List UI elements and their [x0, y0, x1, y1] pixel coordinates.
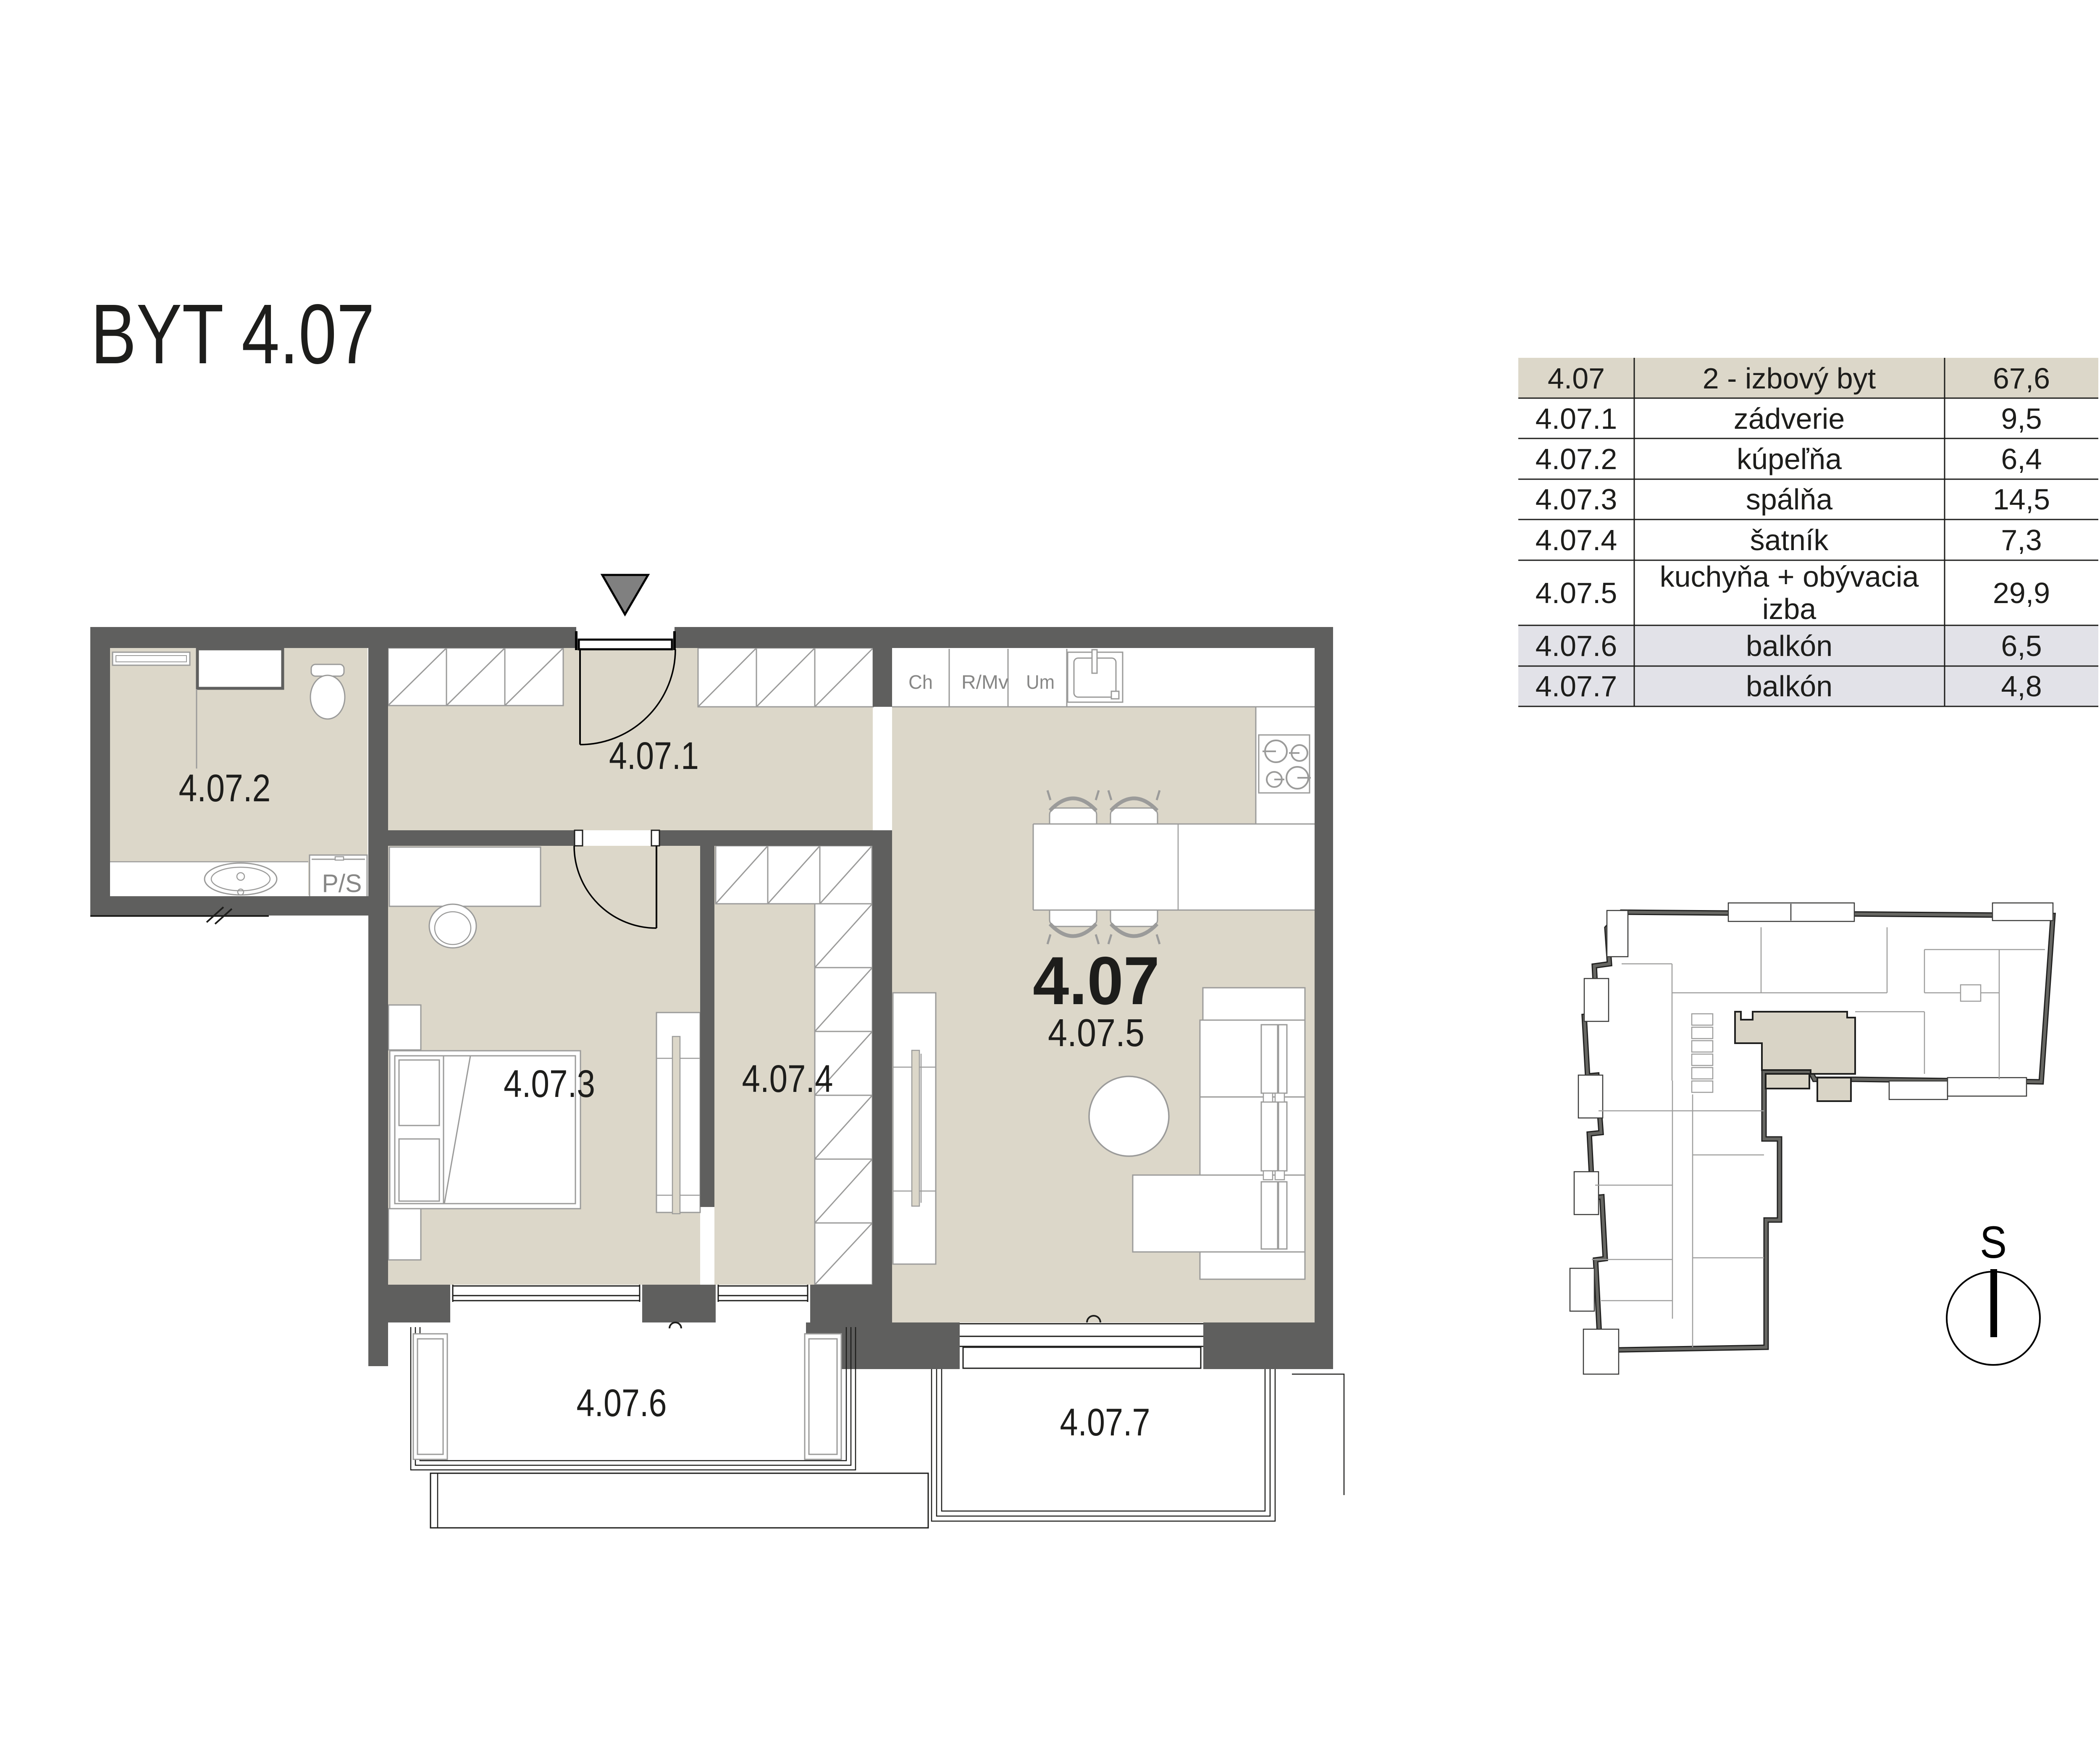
- svg-text:spálňa: spálňa: [1746, 483, 1832, 516]
- svg-text:4.07.1: 4.07.1: [609, 735, 699, 777]
- svg-text:4.07.3: 4.07.3: [1536, 483, 1617, 516]
- svg-text:P/S: P/S: [322, 869, 362, 897]
- svg-text:Um: Um: [1026, 671, 1055, 693]
- svg-text:S: S: [1980, 1217, 2007, 1267]
- svg-text:R/Mv: R/Mv: [961, 671, 1008, 693]
- svg-text:4.07.1: 4.07.1: [1536, 402, 1617, 435]
- svg-text:4.07.4: 4.07.4: [1536, 524, 1617, 556]
- svg-text:4.07.6: 4.07.6: [1536, 630, 1617, 662]
- svg-text:4.07.6: 4.07.6: [577, 1382, 667, 1425]
- svg-text:2 - izbový byt: 2 - izbový byt: [1703, 362, 1876, 395]
- svg-text:7,3: 7,3: [2001, 524, 2042, 556]
- svg-text:6,5: 6,5: [2001, 630, 2042, 662]
- svg-text:4.07.7: 4.07.7: [1536, 670, 1617, 703]
- svg-text:14,5: 14,5: [1993, 483, 2050, 516]
- svg-text:4.07: 4.07: [1548, 362, 1605, 395]
- svg-text:BYT 4.07: BYT 4.07: [91, 286, 375, 381]
- svg-text:4.07.5: 4.07.5: [1048, 1011, 1144, 1055]
- svg-text:4.07.3: 4.07.3: [504, 1063, 595, 1105]
- svg-text:šatník: šatník: [1750, 524, 1829, 556]
- svg-text:4.07.7: 4.07.7: [1060, 1401, 1150, 1444]
- svg-text:balkón: balkón: [1746, 630, 1832, 662]
- svg-text:67,6: 67,6: [1993, 362, 2050, 395]
- svg-text:izba: izba: [1762, 593, 1816, 625]
- svg-text:6,4: 6,4: [2001, 443, 2042, 475]
- svg-text:29,9: 29,9: [1993, 577, 2050, 609]
- svg-text:Ch: Ch: [908, 671, 933, 693]
- svg-text:zádverie: zádverie: [1734, 402, 1845, 435]
- svg-text:kúpeľňa: kúpeľňa: [1737, 443, 1842, 475]
- svg-text:balkón: balkón: [1746, 670, 1832, 703]
- svg-text:4.07: 4.07: [1033, 943, 1160, 1019]
- svg-text:4.07.4: 4.07.4: [742, 1057, 833, 1100]
- svg-text:kuchyňa + obývacia: kuchyňa + obývacia: [1660, 560, 1919, 593]
- svg-text:4,8: 4,8: [2001, 670, 2042, 703]
- svg-text:9,5: 9,5: [2001, 402, 2042, 435]
- svg-text:4.07.5: 4.07.5: [1536, 577, 1617, 609]
- svg-text:4.07.2: 4.07.2: [1536, 443, 1617, 475]
- svg-text:4.07.2: 4.07.2: [179, 767, 271, 810]
